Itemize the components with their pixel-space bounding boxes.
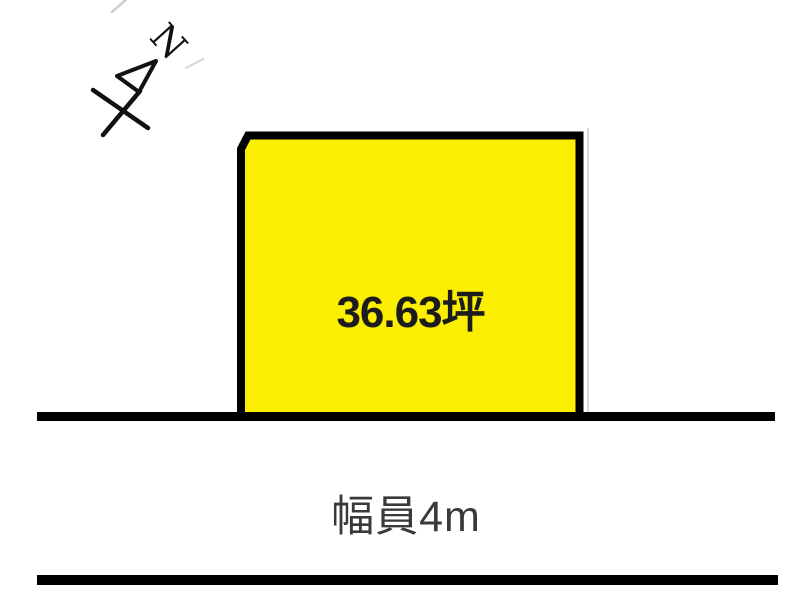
- parcel-area-label: 36.63坪: [237, 289, 584, 337]
- scan-artifact-line-right: [186, 59, 203, 68]
- north-arrow-icon: N: [93, 15, 195, 135]
- north-arrow-head: [117, 61, 156, 92]
- road-width-label: 幅員4m: [0, 482, 805, 544]
- road-edge-lower-line: [37, 575, 778, 585]
- north-arrow-shaft: [103, 91, 140, 135]
- land-parcel-shape: [241, 136, 580, 417]
- road-edge-upper-line: [37, 412, 775, 421]
- north-arrow-crossbar: [93, 90, 148, 128]
- land-plot-diagram: N 36.63坪 幅員4m: [0, 0, 805, 605]
- scan-artifact-line-top: [112, 0, 130, 12]
- north-label: N: [142, 15, 196, 68]
